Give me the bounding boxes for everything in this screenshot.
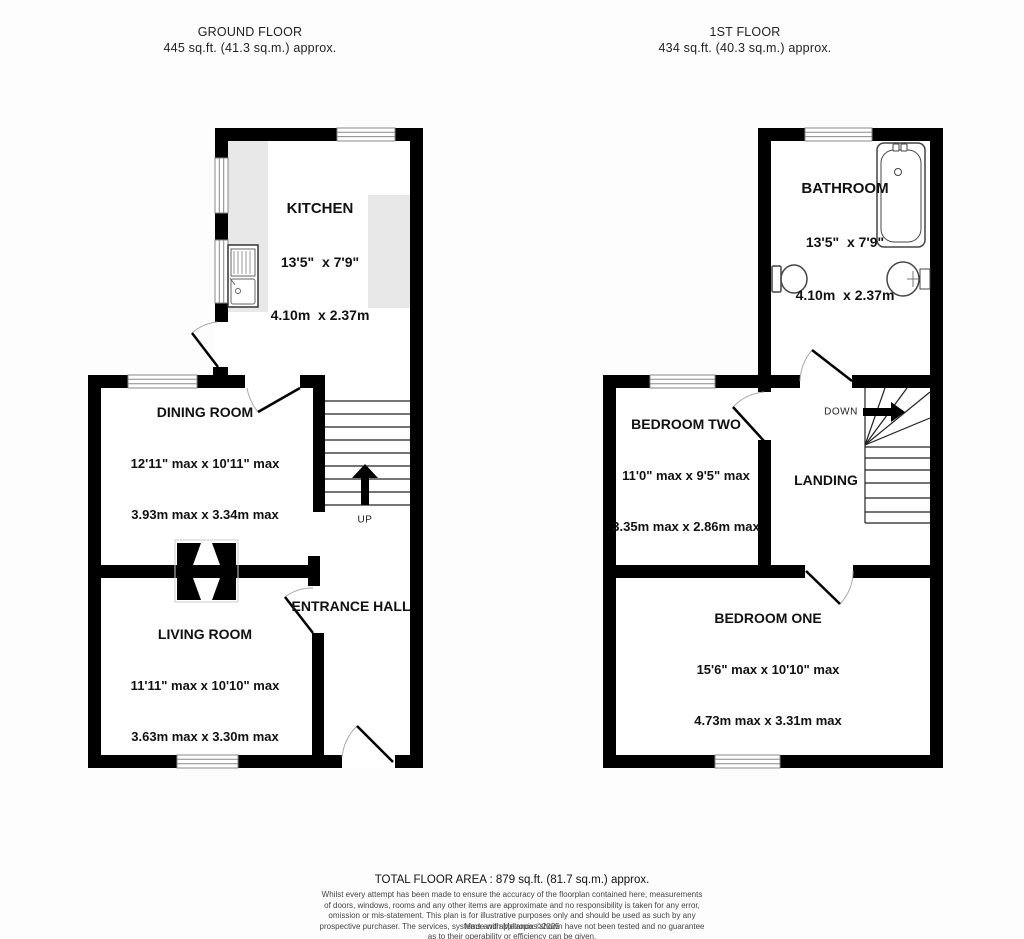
kitchen-sink <box>228 245 258 307</box>
kitchen-label: KITCHEN 13'5" x 7'9" 4.10m x 2.37m <box>271 164 370 360</box>
dining-room-dim-imperial: 12'11" max x 10'11" max <box>131 456 280 471</box>
bedroom-one-dim-imperial: 15'6" max x 10'10" max <box>694 662 841 677</box>
bedroom-one-dim-metric: 4.73m max x 3.31m max <box>694 713 841 728</box>
landing-label: LANDING <box>794 436 858 524</box>
bathroom-dim-metric: 4.10m x 2.37m <box>796 287 895 304</box>
up-label: UP <box>358 515 373 526</box>
living-room-name: LIVING ROOM <box>131 626 280 642</box>
entrance-hall-name: ENTRANCE HALL <box>292 598 411 614</box>
living-room-dim-imperial: 11'11" max x 10'10" max <box>131 678 280 693</box>
kitchen-dim-imperial: 13'5" x 7'9" <box>271 254 370 271</box>
first-floor-plan: BATHROOM 13'5" x 7'9" 4.10m x 2.37m BEDR… <box>595 120 950 780</box>
bathroom-name: BATHROOM <box>796 180 895 198</box>
kitchen-dim-metric: 4.10m x 2.37m <box>271 307 370 324</box>
disclaimer-line: of doors, windows, rooms and any other i… <box>0 901 1024 912</box>
total-floor-area: TOTAL FLOOR AREA : 879 sq.ft. (81.7 sq.m… <box>0 874 1024 886</box>
first-floor-area-text: 434 sq.ft. (40.3 sq.m.) approx. <box>580 40 910 56</box>
disclaimer-line: omission or mis-statement. This plan is … <box>0 911 1024 922</box>
living-room-dim-metric: 3.63m max x 3.30m max <box>131 729 280 744</box>
entrance-hall-label: ENTRANCE HALL <box>292 562 411 650</box>
kitchen-name: KITCHEN <box>271 200 370 218</box>
disclaimer-line: Whilst every attempt has been made to en… <box>0 890 1024 901</box>
ground-floor-area-text: 445 sq.ft. (41.3 sq.m.) approx. <box>85 40 415 56</box>
living-room-label: LIVING ROOM 11'11" max x 10'10" max 3.63… <box>131 590 280 780</box>
ground-floor-title: GROUND FLOOR 445 sq.ft. (41.3 sq.m.) app… <box>85 24 415 56</box>
disclaimer: Whilst every attempt has been made to en… <box>0 890 1024 939</box>
first-floor-title: 1ST FLOOR 434 sq.ft. (40.3 sq.m.) approx… <box>580 24 910 56</box>
bedroom-two-label: BEDROOM TWO 11'0" max x 9'5" max 3.35m m… <box>612 380 759 570</box>
first-floor-title-text: 1ST FLOOR <box>580 24 910 40</box>
floorplan-page: GROUND FLOOR 445 sq.ft. (41.3 sq.m.) app… <box>0 0 1024 939</box>
landing-name: LANDING <box>794 472 858 488</box>
bedroom-two-dim-imperial: 11'0" max x 9'5" max <box>612 468 759 483</box>
bedroom-two-dim-metric: 3.35m max x 2.86m max <box>612 519 759 534</box>
credit-line: Made with Metropix ©2025 <box>0 922 1024 931</box>
bathroom-label: BATHROOM 13'5" x 7'9" 4.10m x 2.37m <box>796 144 895 340</box>
dining-room-label: DINING ROOM 12'11" max x 10'11" max 3.93… <box>131 368 280 558</box>
bedroom-one-name: BEDROOM ONE <box>694 610 841 626</box>
bedroom-two-name: BEDROOM TWO <box>612 416 759 432</box>
bedroom-one-label: BEDROOM ONE 15'6" max x 10'10" max 4.73m… <box>694 574 841 764</box>
dining-room-name: DINING ROOM <box>131 404 280 420</box>
down-label: DOWN <box>824 407 858 418</box>
bathroom-dim-imperial: 13'5" x 7'9" <box>796 234 895 251</box>
dining-room-dim-metric: 3.93m max x 3.34m max <box>131 507 280 522</box>
disclaimer-line: as to their operability or efficiency ca… <box>0 932 1024 939</box>
ground-floor-title-text: GROUND FLOOR <box>85 24 415 40</box>
ground-floor-plan: KITCHEN 13'5" x 7'9" 4.10m x 2.37m DININ… <box>85 120 430 780</box>
